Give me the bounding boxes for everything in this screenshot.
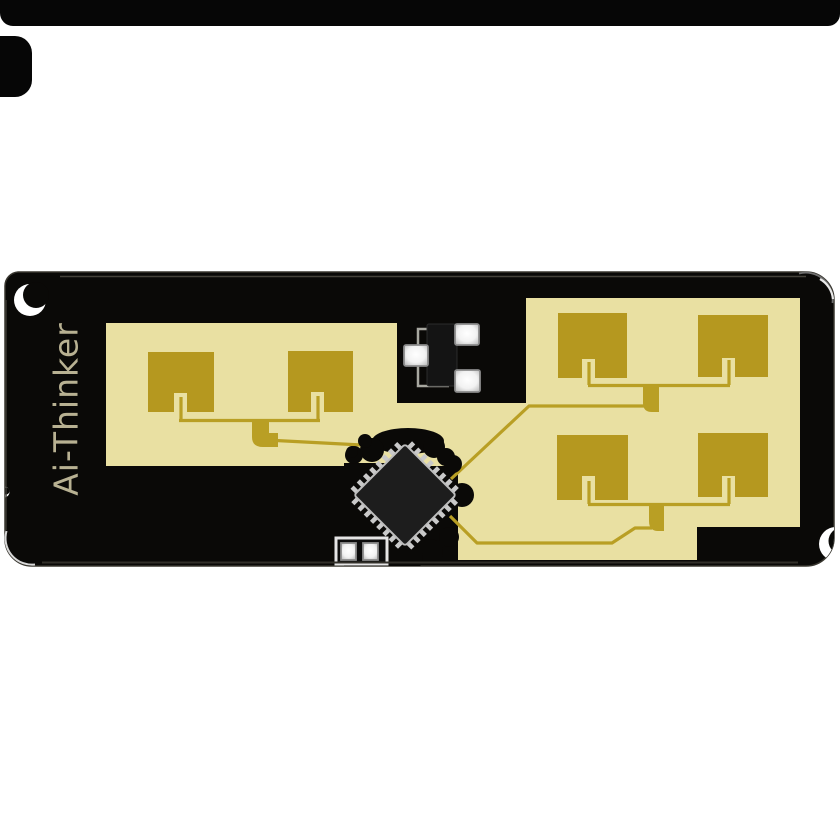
capacitor-pad-left (341, 543, 356, 560)
photo-crop-artifacts (0, 0, 840, 97)
capacitor-pad-right (363, 543, 378, 560)
brand-silkscreen-text: Ai-Thinker (47, 322, 86, 496)
crystal-pad-right-top (455, 324, 479, 345)
radar-module-board: Ai-Thinker (0, 272, 840, 571)
decoupling-capacitor (336, 538, 387, 564)
crystal-pad-left (404, 345, 428, 366)
left-tab-artifact (0, 36, 32, 97)
crystal-body (427, 324, 457, 386)
top-bar-artifact (0, 0, 840, 26)
crystal-pad-right-bottom (455, 370, 480, 392)
product-photo-pcb-module: Ai-Thinker (0, 0, 840, 840)
upper-right-feed-stub (643, 385, 659, 412)
lower-right-feed-stub (649, 504, 664, 531)
